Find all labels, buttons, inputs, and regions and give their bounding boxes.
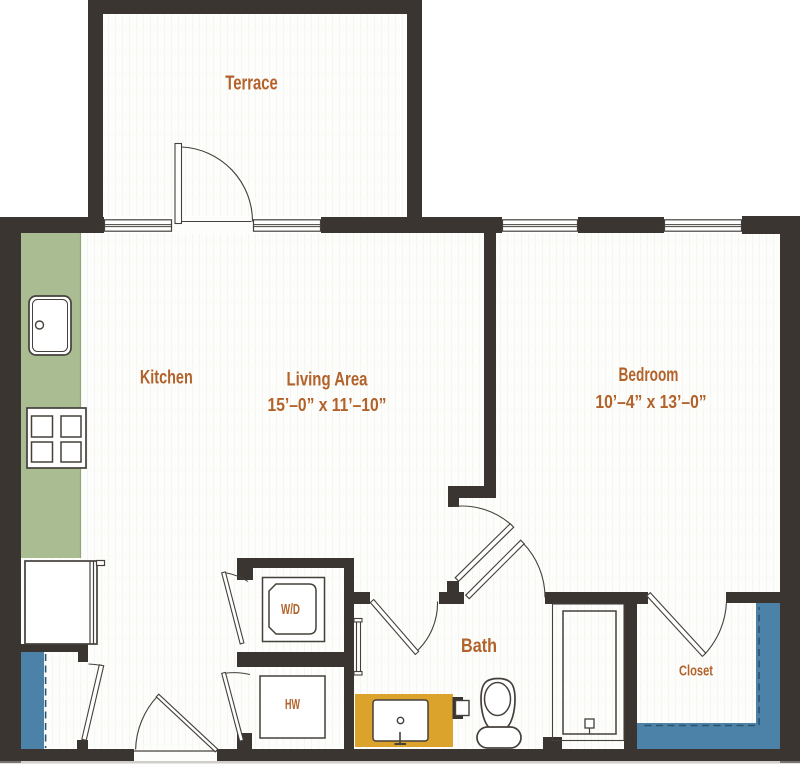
svg-text:10’–4” x 13’–0”: 10’–4” x 13’–0” bbox=[595, 392, 706, 413]
svg-text:Living Area: Living Area bbox=[287, 367, 368, 389]
svg-text:Terrace: Terrace bbox=[225, 71, 278, 94]
svg-text:15’–0” x 11’–10”: 15’–0” x 11’–10” bbox=[268, 395, 387, 416]
svg-text:Kitchen: Kitchen bbox=[140, 365, 193, 388]
svg-text:W/D: W/D bbox=[281, 601, 300, 618]
svg-text:Bath: Bath bbox=[461, 635, 497, 657]
svg-text:HW: HW bbox=[285, 696, 300, 713]
svg-text:Closet: Closet bbox=[679, 662, 713, 679]
svg-text:Bedroom: Bedroom bbox=[619, 364, 679, 386]
